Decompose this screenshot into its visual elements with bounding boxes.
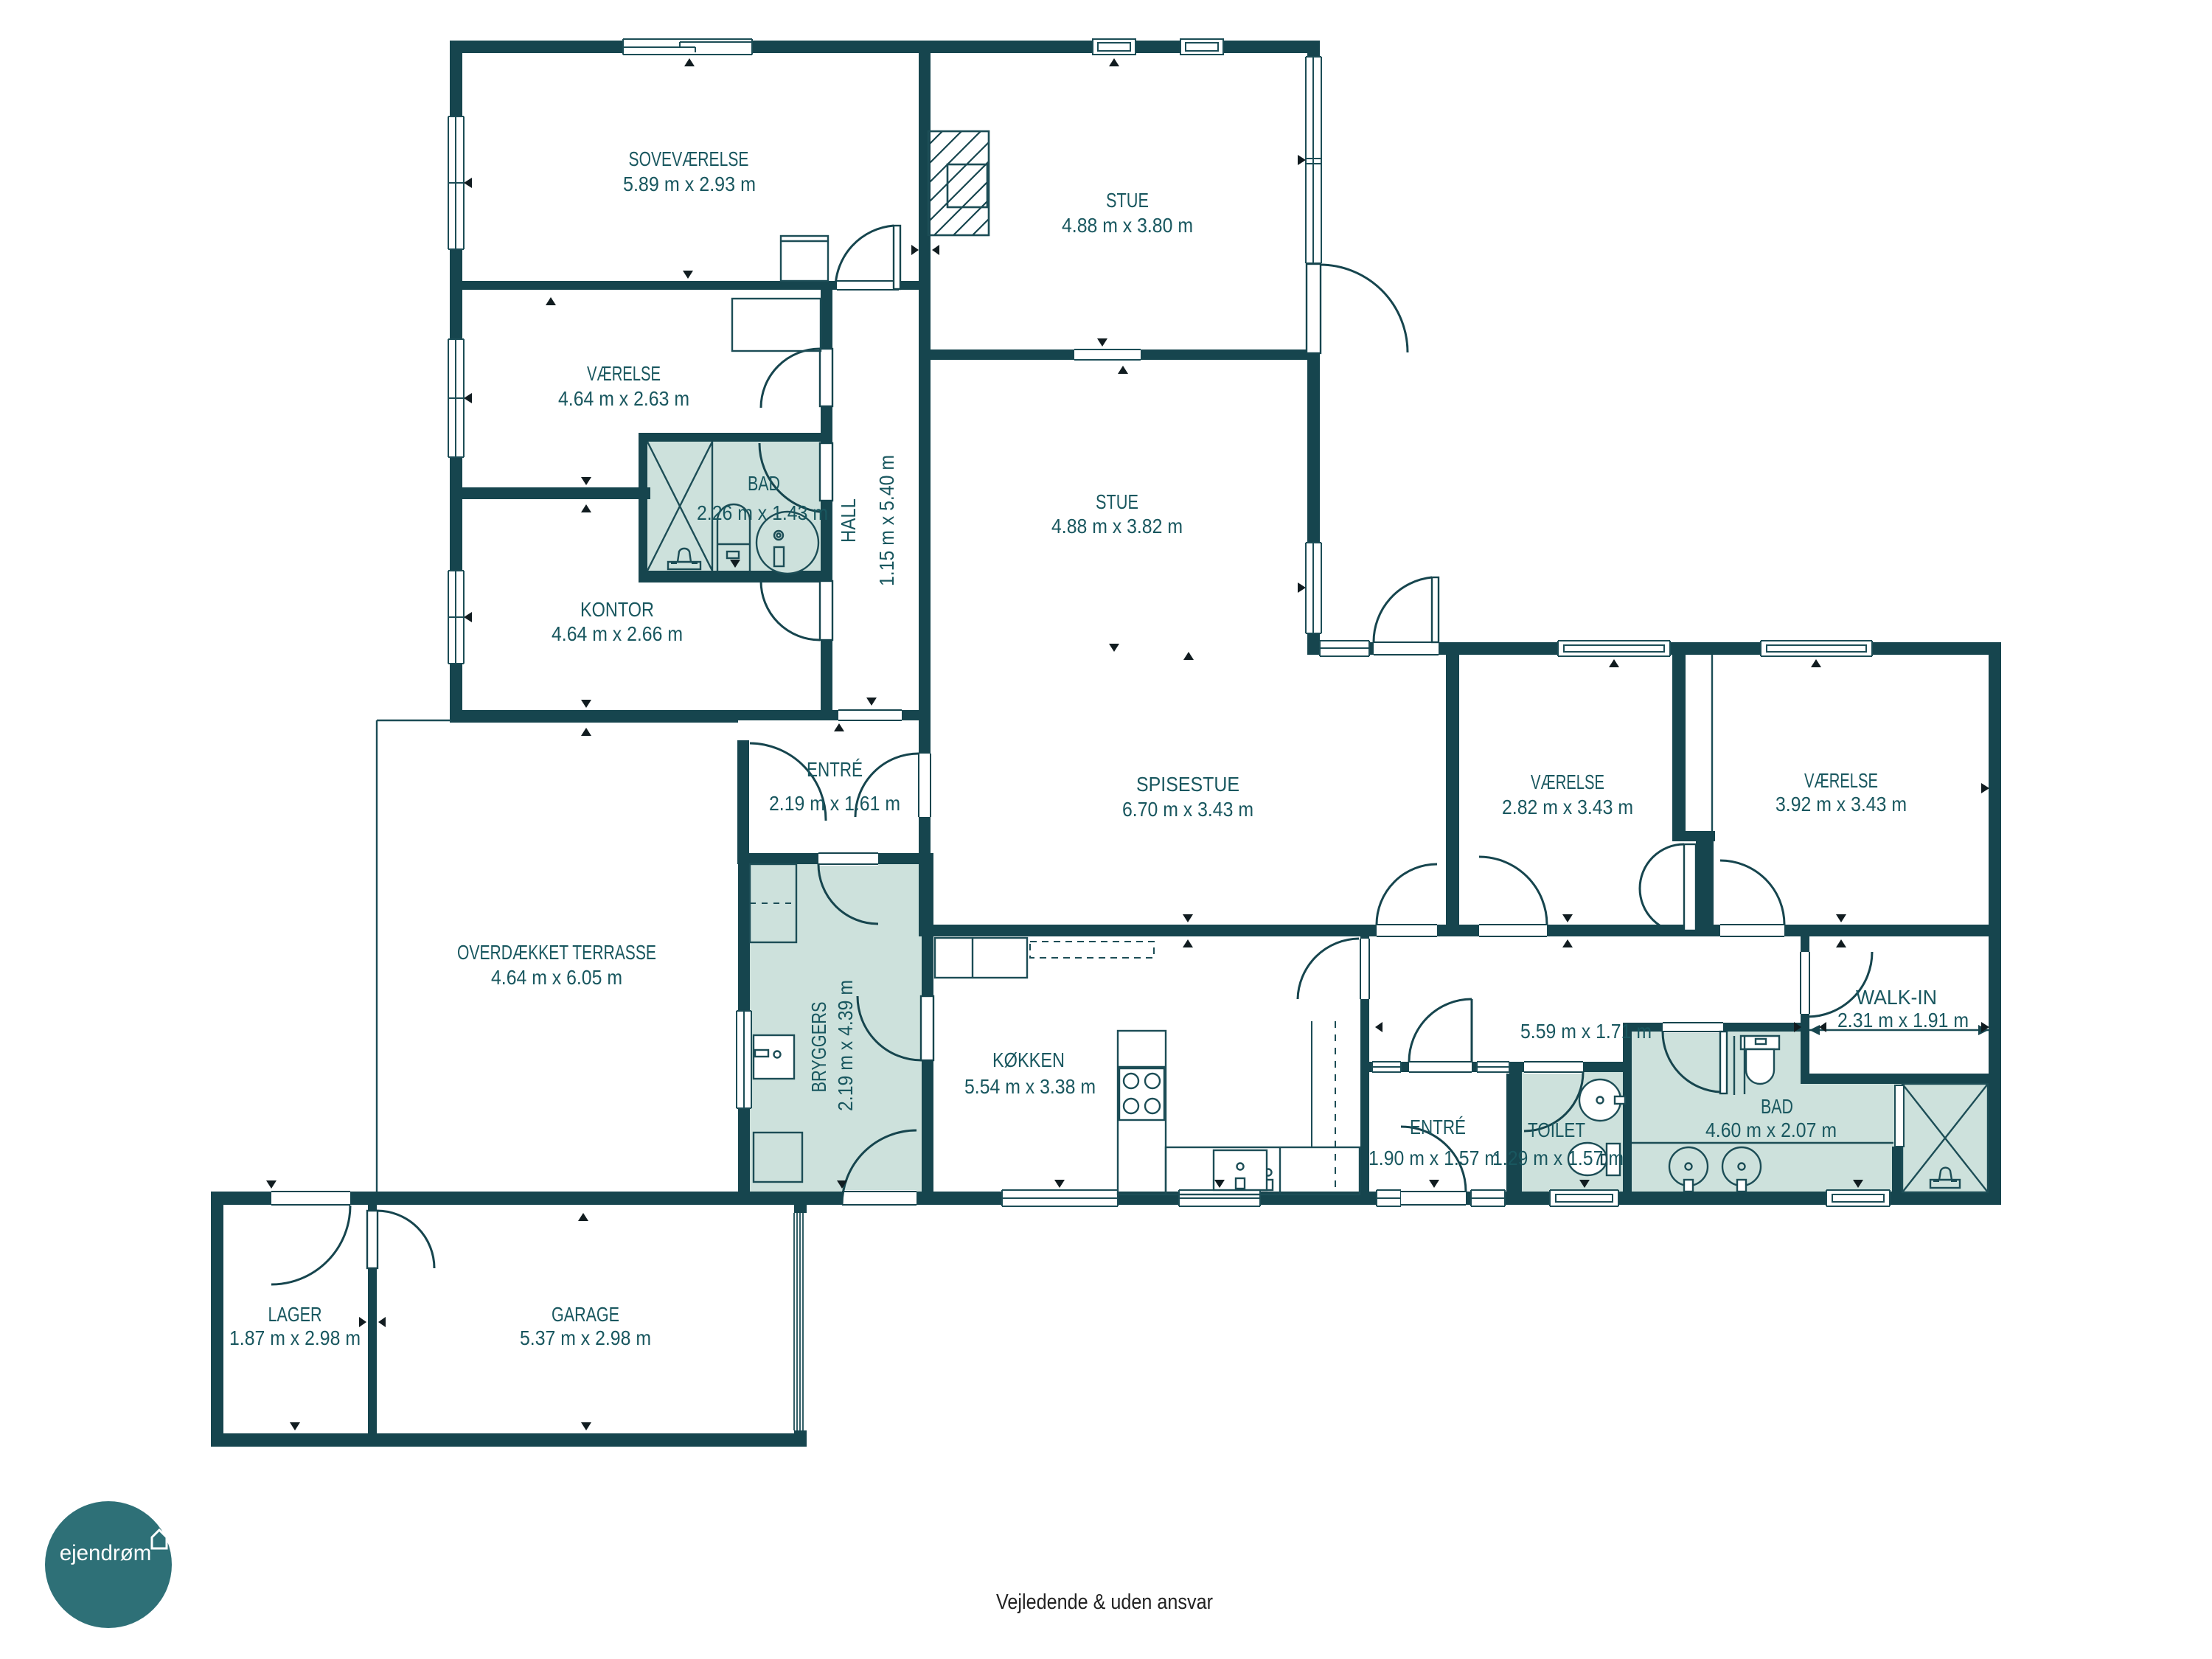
svg-text:5.54 m x 3.38 m: 5.54 m x 3.38 m — [964, 1075, 1096, 1098]
svg-text:3.92 m x 3.43 m: 3.92 m x 3.43 m — [1775, 793, 1907, 815]
svg-text:BAD: BAD — [748, 472, 780, 495]
svg-text:TOILET: TOILET — [1528, 1119, 1585, 1141]
svg-text:2.19 m x 4.39 m: 2.19 m x 4.39 m — [834, 980, 857, 1111]
svg-text:ENTRÉ: ENTRÉ — [1410, 1116, 1466, 1138]
svg-text:1.90 m x 1.57 m: 1.90 m x 1.57 m — [1368, 1147, 1500, 1169]
svg-text:2.19 m x 1.61 m: 2.19 m x 1.61 m — [769, 792, 900, 815]
svg-text:BAD: BAD — [1761, 1095, 1793, 1118]
svg-text:4.88 m x 3.80 m: 4.88 m x 3.80 m — [1062, 214, 1193, 237]
svg-text:KØKKEN: KØKKEN — [992, 1048, 1065, 1071]
svg-text:HALL: HALL — [837, 498, 860, 543]
svg-text:STUE: STUE — [1106, 189, 1149, 212]
svg-text:2.26 m x 1.43 m: 2.26 m x 1.43 m — [697, 501, 828, 524]
svg-text:ENTRÉ: ENTRÉ — [807, 758, 863, 781]
svg-text:KONTOR: KONTOR — [580, 598, 654, 621]
svg-text:1.87 m x 2.98 m: 1.87 m x 2.98 m — [229, 1326, 361, 1349]
svg-text:4.88 m x 3.82 m: 4.88 m x 3.82 m — [1051, 515, 1183, 538]
svg-text:5.59 m x 1.71 m: 5.59 m x 1.71 m — [1520, 1020, 1652, 1043]
svg-text:STUE: STUE — [1096, 490, 1138, 513]
svg-text:1.15 m x 5.40 m: 1.15 m x 5.40 m — [875, 455, 898, 586]
svg-text:VÆRELSE: VÆRELSE — [1531, 771, 1604, 793]
svg-text:LAGER: LAGER — [268, 1303, 322, 1326]
svg-text:4.60 m x 2.07 m: 4.60 m x 2.07 m — [1705, 1119, 1837, 1141]
svg-text:4.64 m x 6.05 m: 4.64 m x 6.05 m — [491, 966, 622, 989]
svg-text:VÆRELSE: VÆRELSE — [1804, 769, 1878, 792]
svg-text:6.70 m x 3.43 m: 6.70 m x 3.43 m — [1122, 798, 1253, 821]
svg-text:BRYGGERS: BRYGGERS — [807, 1002, 830, 1093]
svg-text:4.64 m x 2.66 m: 4.64 m x 2.66 m — [552, 622, 683, 645]
svg-text:5.89 m x 2.93 m: 5.89 m x 2.93 m — [623, 173, 756, 195]
svg-text:OVERDÆKKET TERRASSE: OVERDÆKKET TERRASSE — [457, 941, 656, 964]
svg-text:5.37 m x 2.98 m: 5.37 m x 2.98 m — [520, 1326, 651, 1349]
svg-text:GARAGE: GARAGE — [552, 1303, 619, 1326]
svg-text:2.82 m x 3.43 m: 2.82 m x 3.43 m — [1502, 796, 1633, 818]
svg-text:SOVEVÆRELSE: SOVEVÆRELSE — [629, 147, 749, 170]
svg-text:Vejledende & uden ansvar: Vejledende & uden ansvar — [996, 1590, 1213, 1614]
svg-text:WALK-IN: WALK-IN — [1856, 986, 1937, 1009]
svg-text:2.31 m x 1.91 m: 2.31 m x 1.91 m — [1837, 1009, 1969, 1032]
svg-text:SPISESTUE: SPISESTUE — [1136, 773, 1239, 796]
svg-text:VÆRELSE: VÆRELSE — [587, 362, 661, 385]
svg-text:ejendrøm: ejendrøm — [60, 1541, 152, 1565]
svg-text:1.29 m x 1.57 m: 1.29 m x 1.57 m — [1492, 1147, 1624, 1169]
svg-text:4.64 m x 2.63 m: 4.64 m x 2.63 m — [558, 387, 689, 410]
